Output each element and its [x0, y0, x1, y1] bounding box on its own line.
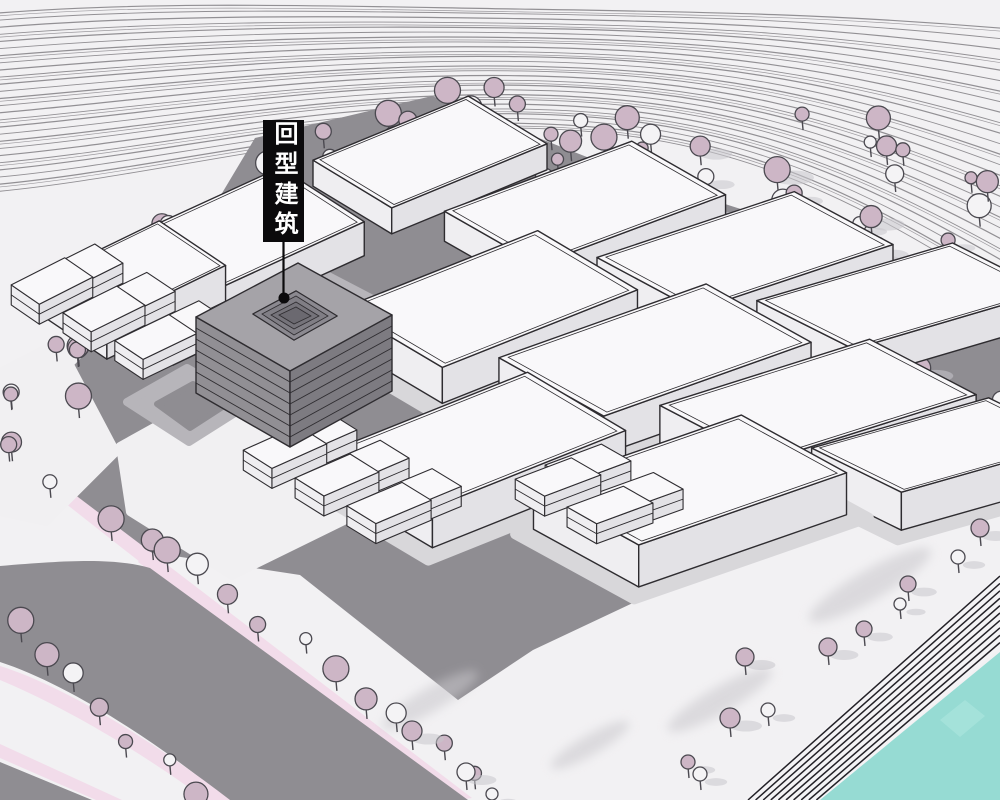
tree [965, 172, 977, 184]
site-plan-canvas [0, 0, 1000, 800]
tree [761, 703, 775, 717]
tree [457, 763, 475, 781]
tree [484, 77, 504, 97]
ground-shadow [546, 714, 634, 776]
tree [509, 96, 525, 112]
tree [386, 703, 406, 723]
tree [375, 100, 401, 126]
tree [896, 143, 910, 157]
tree [164, 754, 176, 766]
architectural-site-diagram: 回型建筑 [0, 0, 1000, 800]
tree [402, 721, 422, 741]
tree [1, 437, 17, 453]
tree [976, 171, 998, 193]
tree [856, 621, 872, 637]
tree [119, 735, 133, 749]
tree [690, 136, 710, 156]
tree [795, 107, 809, 121]
tree [486, 788, 498, 800]
tree [315, 123, 331, 139]
tree [154, 537, 180, 563]
tree [819, 638, 837, 656]
tree [894, 598, 906, 610]
tree [900, 576, 916, 592]
tree [98, 506, 124, 532]
tree [574, 114, 588, 128]
tree [355, 688, 377, 710]
tree [720, 708, 740, 728]
waterfront-layer [744, 573, 1000, 800]
tree [43, 475, 57, 489]
tree [886, 165, 904, 183]
tree [323, 656, 349, 682]
courtyard-building-label: 回型建筑 [263, 120, 304, 242]
tree [35, 643, 59, 667]
tree-shadow [705, 778, 727, 786]
tree [951, 550, 965, 564]
tree [560, 130, 582, 152]
tree [591, 124, 617, 150]
ground-shadow [802, 537, 938, 633]
tree [641, 124, 661, 144]
tree [186, 553, 208, 575]
tree-shadow [773, 714, 795, 722]
tree [864, 136, 876, 148]
tree [866, 106, 890, 130]
tree [681, 755, 695, 769]
tree [434, 77, 460, 103]
tree [877, 136, 897, 156]
tree [217, 584, 237, 604]
tree [250, 616, 266, 632]
tree [48, 336, 64, 352]
tree [764, 157, 790, 183]
tree [736, 648, 754, 666]
tree [65, 383, 91, 409]
ground-shadow [662, 659, 779, 742]
tree [63, 663, 83, 683]
tree [860, 206, 882, 228]
annotation-dot [279, 293, 290, 304]
tree [8, 607, 34, 633]
tree [4, 387, 18, 401]
tree-shadow [906, 609, 925, 616]
tree [615, 106, 639, 130]
tree [693, 767, 707, 781]
tree [544, 127, 558, 141]
tree [971, 519, 989, 537]
tree [184, 782, 208, 800]
tree [552, 153, 564, 165]
tree [90, 698, 108, 716]
tree [300, 633, 312, 645]
tree-shadow [963, 561, 985, 569]
